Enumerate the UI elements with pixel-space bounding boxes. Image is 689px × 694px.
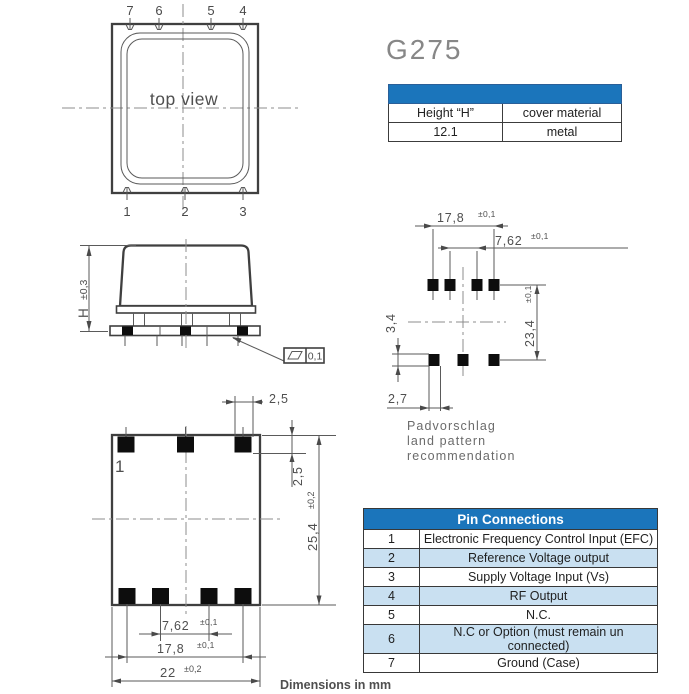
lp-dim-inner: 7,62 bbox=[495, 234, 523, 248]
caption-line-1: Padvorschlag bbox=[407, 419, 516, 434]
pin-number: 3 bbox=[364, 568, 420, 587]
part-number-title: G275 bbox=[386, 34, 463, 66]
pin-function: Supply Voltage Input (Vs) bbox=[420, 568, 658, 587]
pin-number: 6 bbox=[364, 625, 420, 654]
pin-number: 1 bbox=[364, 530, 420, 549]
pin-function: N.C. bbox=[420, 606, 658, 625]
land-pattern-drawing: 17,8 ±0,1 7,62 ±0,1 bbox=[384, 209, 628, 411]
pin-label-4: 4 bbox=[239, 3, 246, 18]
lp-dim-outer-tol: ±0,1 bbox=[478, 209, 496, 219]
lp-pad-height-dimension: 3,4 bbox=[384, 313, 429, 382]
pin-number: 7 bbox=[364, 654, 420, 673]
bv-pin1-label: 1 bbox=[115, 457, 124, 476]
top-view-label: top view bbox=[150, 89, 218, 109]
height-tolerance: ±0,3 bbox=[78, 279, 90, 300]
pin-label-1: 1 bbox=[123, 204, 130, 219]
pin-number: 2 bbox=[364, 549, 420, 568]
pin-table-title: Pin Connections bbox=[364, 509, 658, 530]
table-row: 7 Ground (Case) bbox=[364, 654, 658, 673]
pin-connections-table: Pin Connections 1 Electronic Frequency C… bbox=[363, 508, 658, 673]
bv-dim-inner-tol: ±0,1 bbox=[200, 617, 218, 627]
table-row: 5 N.C. bbox=[364, 606, 658, 625]
caption-line-2: land pattern bbox=[407, 434, 516, 449]
table-row: 6 N.C or Option (must remain un connecte… bbox=[364, 625, 658, 654]
pin-label-7: 7 bbox=[126, 3, 133, 18]
bv-dim-pad-w: 2,5 bbox=[269, 392, 289, 406]
height-label: H bbox=[76, 308, 91, 318]
bv-dim-height-tol: ±0,2 bbox=[306, 492, 316, 509]
dimensions-unit-note: Dimensions in mm bbox=[280, 678, 391, 692]
bv-dim-width-tol: ±0,2 bbox=[184, 664, 201, 674]
pin-label-6: 6 bbox=[155, 3, 162, 18]
bv-pad-height-dimension: 2,5 bbox=[253, 420, 336, 487]
lp-rows-dimension: 23,4 ±0,1 bbox=[500, 285, 546, 360]
pin-function: Electronic Frequency Control Input (EFC) bbox=[420, 530, 658, 549]
table-row: 2 Reference Voltage output bbox=[364, 549, 658, 568]
bv-dim-inner: 7,62 bbox=[162, 619, 190, 633]
pin-number: 5 bbox=[364, 606, 420, 625]
bv-dim-height: 25,4 bbox=[305, 522, 320, 551]
top-view-drawing: 7 6 5 4 1 2 3 top view bbox=[62, 3, 300, 219]
height-column-header: Height “H” bbox=[389, 104, 503, 123]
pin-function: Reference Voltage output bbox=[420, 549, 658, 568]
pin-label-3: 3 bbox=[239, 204, 246, 219]
height-cover-table: Height “H” cover material 12.1 metal bbox=[388, 84, 622, 142]
bv-body-height-dimension: 25,4 ±0,2 bbox=[262, 436, 336, 606]
lp-dim-inner-tol: ±0,1 bbox=[531, 231, 549, 241]
flatness-callout: 0,1 bbox=[232, 337, 324, 363]
height-value: 12.1 bbox=[389, 123, 503, 142]
land-pattern-caption: Padvorschlag land pattern recommendation bbox=[407, 419, 516, 464]
table-row: 3 Supply Voltage Input (Vs) bbox=[364, 568, 658, 587]
datasheet-page: 7 6 5 4 1 2 3 top view bbox=[0, 0, 689, 694]
pin-number: 4 bbox=[364, 587, 420, 606]
pin-function: Ground (Case) bbox=[420, 654, 658, 673]
lp-dim-pad-w: 2,7 bbox=[388, 392, 408, 406]
bv-dim-width: 22 bbox=[160, 665, 176, 680]
bv-dim-outer-tol: ±0,1 bbox=[197, 640, 215, 650]
pin-label-5: 5 bbox=[207, 3, 214, 18]
side-view-drawing: H ±0,3 0,1 bbox=[76, 239, 324, 363]
bv-pad-width-dimension: 2,5 bbox=[222, 392, 289, 437]
flatness-value: 0,1 bbox=[308, 351, 323, 363]
caption-line-3: recommendation bbox=[407, 449, 516, 464]
height-table-header-bar bbox=[389, 85, 622, 104]
lp-dim-outer: 17,8 bbox=[437, 211, 465, 225]
table-row: 4 RF Output bbox=[364, 587, 658, 606]
pin-function: N.C or Option (must remain un connected) bbox=[420, 625, 658, 654]
bv-dim-outer: 17,8 bbox=[157, 642, 185, 656]
lp-dim-pad-h: 3,4 bbox=[384, 313, 398, 333]
pin-function: RF Output bbox=[420, 587, 658, 606]
bv-dim-pad-h: 2,5 bbox=[291, 466, 305, 486]
table-row: 1 Electronic Frequency Control Input (EF… bbox=[364, 530, 658, 549]
cover-material-column-header: cover material bbox=[503, 104, 622, 123]
cover-material-value: metal bbox=[503, 123, 622, 142]
lp-dim-rows: 23,4 bbox=[523, 319, 537, 347]
bottom-view-drawing: 1 2,5 2,5 bbox=[92, 392, 336, 687]
pin-label-2: 2 bbox=[181, 204, 188, 219]
lp-dim-rows-tol: ±0,1 bbox=[523, 285, 533, 303]
